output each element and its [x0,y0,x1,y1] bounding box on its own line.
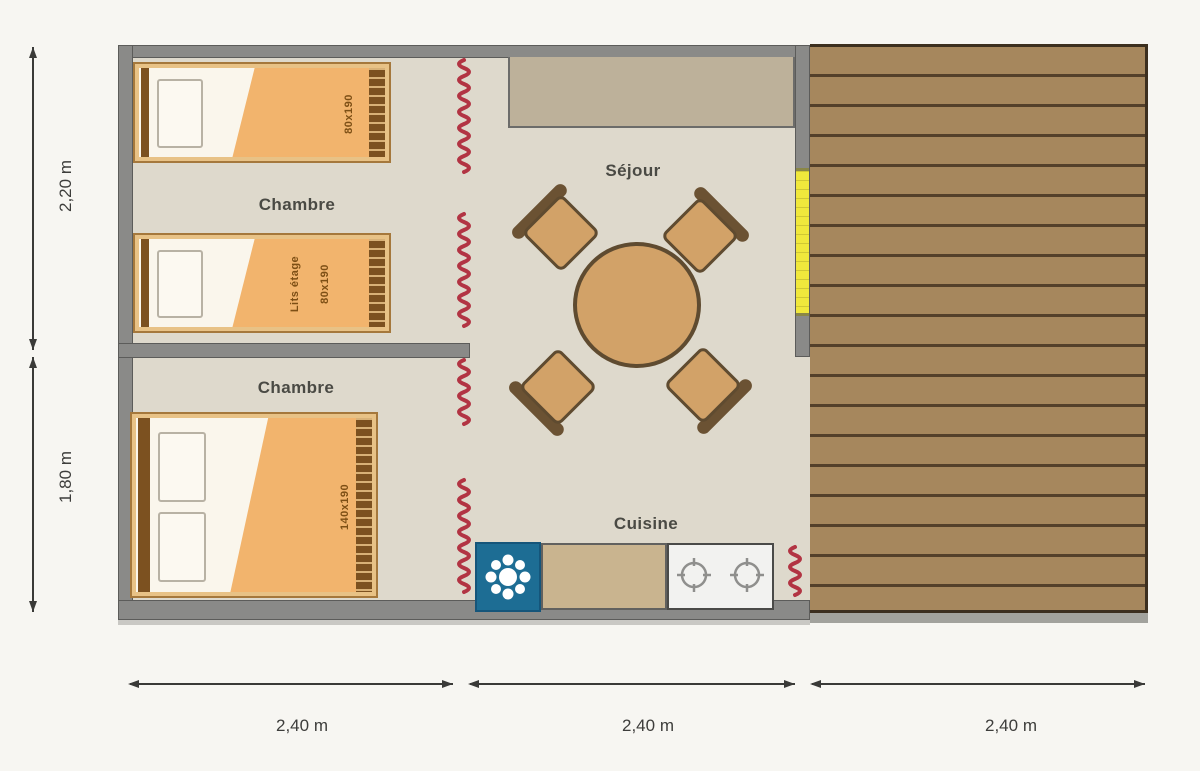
dimension-arrow [442,680,453,688]
dimension-line-horizontal-2 [470,683,795,685]
bed-size-label: 140x190 [339,484,351,530]
dimension-arrow [810,680,821,688]
dimension-line-horizontal-3 [812,683,1145,685]
dimension-line-horizontal-1 [130,683,453,685]
bed-type-label: Lits étage [289,256,301,312]
wall-shadow [118,620,810,625]
dimension-arrow [29,339,37,350]
bed-double: 140x190 [130,412,378,598]
bed-headboard [141,68,149,157]
bed-headboard [141,239,149,327]
bed-pillow [158,512,206,582]
door-to-deck [796,168,809,316]
dimension-label-vertical-1: 2,20 m [56,160,76,212]
dimension-label-horizontal-1: 2,40 m [276,716,328,736]
canvas-wall-zigzag [453,58,469,182]
stove [667,543,774,610]
dimension-arrow [784,680,795,688]
room-label-chambre-bottom: Chambre [258,378,335,398]
fridge [475,542,541,612]
bed-pillow [157,250,203,318]
bed-pillow [158,432,206,502]
sideboard [508,57,795,128]
dimension-arrow [29,47,37,58]
dimension-line-vertical-2 [32,357,34,612]
bed-headboard [138,418,150,592]
dimension-label-horizontal-2: 2,40 m [622,716,674,736]
canvas-wall-zigzag [453,478,469,607]
floor-plan: 80x190 Chambre Lits étage 80x190 Chambre… [0,0,1200,771]
bed-bunk: Lits étage 80x190 [133,233,391,333]
room-label-sejour: Séjour [605,161,660,181]
dimension-arrow [1134,680,1145,688]
bed-single-top: 80x190 [133,62,391,163]
bed-footboard [369,68,385,157]
dimension-label-horizontal-3: 2,40 m [985,716,1037,736]
bed-footboard [356,418,372,592]
dimension-label-vertical-2: 1,80 m [56,451,76,503]
dimension-arrow [468,680,479,688]
wall-bedroom-divider [118,343,470,358]
gas-burner-icon [669,545,772,608]
bed-pillow [157,79,203,148]
canvas-wall-zigzag [453,358,469,428]
canvas-wall-zigzag [784,545,800,607]
kitchen-counter [541,543,667,610]
snowflake-icon [477,544,539,610]
dimension-arrow [128,680,139,688]
dimension-arrow [29,601,37,612]
wood-deck [810,44,1148,613]
bed-footboard [369,239,385,327]
dimension-line-vertical-1 [32,47,34,350]
bed-size-label: 80x190 [319,264,331,304]
room-label-cuisine: Cuisine [614,514,678,534]
bed-size-label: 80x190 [343,94,355,134]
dimension-arrow [29,357,37,368]
dining-table [573,242,701,368]
deck-edge-shadow [810,613,1148,623]
room-label-chambre-top: Chambre [259,195,336,215]
canvas-wall-zigzag [453,212,469,340]
